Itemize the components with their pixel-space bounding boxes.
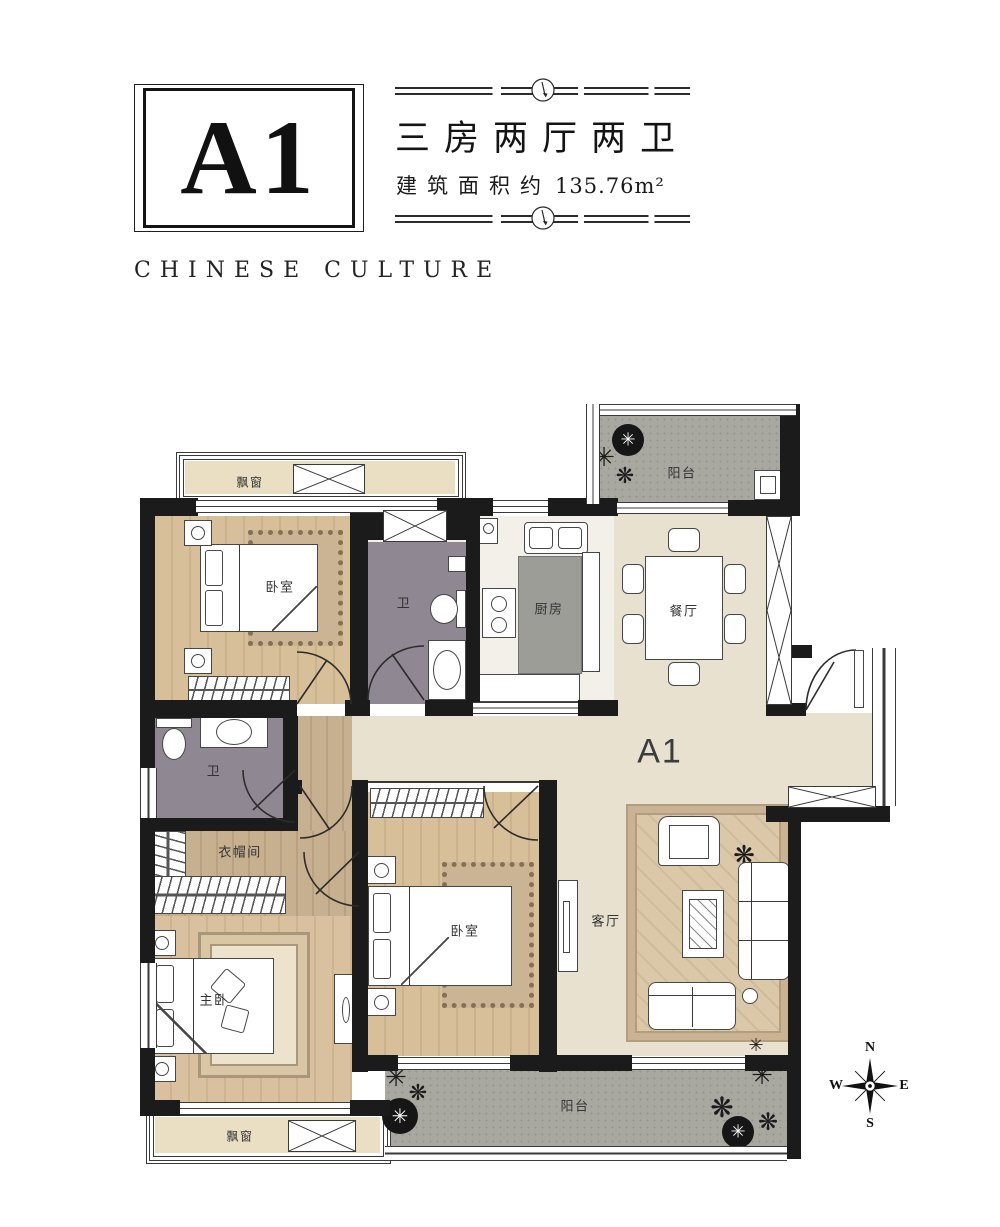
wall xyxy=(140,700,297,718)
room-label-cloakroom: 衣帽间 xyxy=(218,842,262,861)
plant: ❋ xyxy=(409,1083,427,1105)
washing-machine xyxy=(754,470,782,500)
sofa xyxy=(738,862,790,980)
window xyxy=(140,768,157,818)
wash-basin xyxy=(433,650,461,690)
bed xyxy=(368,886,512,986)
sliding-door xyxy=(473,702,578,714)
wall xyxy=(445,505,466,540)
wall xyxy=(539,780,557,1072)
compass-west-label: W xyxy=(829,1078,843,1094)
wall xyxy=(788,822,801,1057)
plant: ❋ xyxy=(616,466,634,488)
bed xyxy=(200,544,318,632)
plant: ✳ xyxy=(748,1037,763,1055)
room-label-bay-window-bottom: 飘窗 xyxy=(226,1128,253,1145)
balcony-railing xyxy=(385,1146,787,1161)
window xyxy=(180,1102,350,1115)
dining-chair xyxy=(622,564,644,594)
room-label-bath-top: 卫 xyxy=(397,593,412,612)
floorplan-page: A1 三房两厅两卫 建筑面积约135.76m² CHINESE CULTURE xyxy=(0,0,1000,1227)
floor-entry-alcove xyxy=(772,713,872,788)
room-label-dining: 餐厅 xyxy=(669,601,698,620)
wall xyxy=(510,1055,632,1071)
armchair xyxy=(658,816,720,866)
wash-basin xyxy=(216,719,252,745)
water-heater xyxy=(478,518,498,544)
wall xyxy=(578,700,618,716)
wall xyxy=(728,500,782,516)
floorplan: ✳ ✳ ❋ xyxy=(0,0,1000,1227)
door-arc xyxy=(297,652,351,704)
nightstand xyxy=(366,856,396,884)
side-stool xyxy=(742,988,758,1004)
bay-window-bottom-shaft xyxy=(288,1120,356,1152)
wall xyxy=(352,780,368,1072)
wall xyxy=(140,818,155,963)
dining-chair xyxy=(724,614,746,644)
unit-label: A1 xyxy=(637,733,683,772)
dining-chair xyxy=(668,528,700,552)
room-label-balcony-bottom: 阳台 xyxy=(560,1096,589,1115)
wall xyxy=(466,505,480,712)
entry-door-leaf xyxy=(854,650,864,708)
room-label-living: 客厅 xyxy=(591,911,620,930)
plant: ✳ xyxy=(612,424,644,456)
nightstand xyxy=(184,520,212,546)
sliding-door xyxy=(617,502,728,514)
dining-chair xyxy=(668,662,700,686)
plant: ❋ xyxy=(758,1110,778,1134)
door-arc xyxy=(368,646,424,700)
room-label-bay-window-top: 飘窗 xyxy=(236,474,263,491)
kitchen-sink xyxy=(524,522,588,554)
wall xyxy=(350,1100,390,1116)
dining-chair xyxy=(622,614,644,644)
bathroom-shelf xyxy=(448,556,466,572)
room-label-master-bedroom: 主卧 xyxy=(199,990,228,1009)
compass-east-label: E xyxy=(899,1078,908,1094)
room-label-kitchen: 厨房 xyxy=(534,599,563,618)
wall xyxy=(548,498,618,516)
room-label-bedroom-top: 卧室 xyxy=(265,577,294,596)
room-label-bath-mid: 卫 xyxy=(207,761,222,780)
kitchen-side-counter xyxy=(582,552,600,672)
tv-stand xyxy=(558,880,578,972)
closet-rack xyxy=(152,876,286,914)
door-arc xyxy=(243,770,295,822)
coffee-table xyxy=(682,890,724,958)
window xyxy=(493,500,548,513)
compass-south-label: S xyxy=(866,1116,874,1132)
wall xyxy=(766,806,890,822)
nightstand xyxy=(366,988,396,1016)
wall xyxy=(140,498,155,770)
kitchen-cabinet xyxy=(478,674,580,702)
entry-door-arc xyxy=(806,650,856,710)
wall xyxy=(425,700,473,716)
door-arc xyxy=(484,786,538,840)
compass-north-label: N xyxy=(865,1040,875,1056)
wardrobe xyxy=(370,788,484,818)
loveseat xyxy=(648,982,736,1030)
sliding-door xyxy=(632,1057,745,1070)
exterior-wall-line xyxy=(872,648,896,806)
shaft-column xyxy=(766,516,792,705)
window xyxy=(586,404,796,416)
window xyxy=(140,963,157,1048)
wall xyxy=(350,505,368,704)
shaft xyxy=(788,786,876,808)
compass-rose-icon xyxy=(842,1058,898,1114)
wall xyxy=(368,781,539,783)
floor-hallway xyxy=(296,716,772,783)
wall xyxy=(140,1100,180,1116)
toilet-tank xyxy=(156,718,192,728)
wall xyxy=(745,1055,788,1071)
plant: ✳ xyxy=(722,1116,754,1148)
bay-window-top-shaft xyxy=(293,464,365,494)
room-label-balcony-top: 阳台 xyxy=(667,463,696,482)
dining-chair xyxy=(724,564,746,594)
room-label-bedroom-mid: 卧室 xyxy=(450,921,479,940)
wall xyxy=(780,404,800,516)
window xyxy=(586,404,600,504)
door-arc xyxy=(300,786,352,838)
toilet xyxy=(162,728,186,760)
window xyxy=(398,1057,510,1070)
door-arc xyxy=(304,852,359,906)
shaft xyxy=(383,510,447,542)
wall xyxy=(787,1055,801,1159)
wall xyxy=(352,1055,398,1071)
toilet xyxy=(430,594,458,624)
stove xyxy=(482,588,516,638)
nightstand xyxy=(184,648,212,674)
